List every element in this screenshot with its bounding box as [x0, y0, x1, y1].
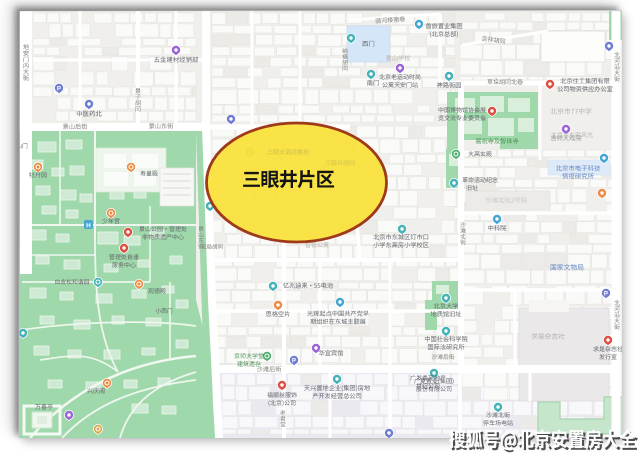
svg-text:P: P	[604, 290, 608, 297]
svg-text:P: P	[292, 357, 296, 364]
svg-text:P: P	[57, 85, 61, 92]
svg-text:H: H	[86, 222, 91, 229]
